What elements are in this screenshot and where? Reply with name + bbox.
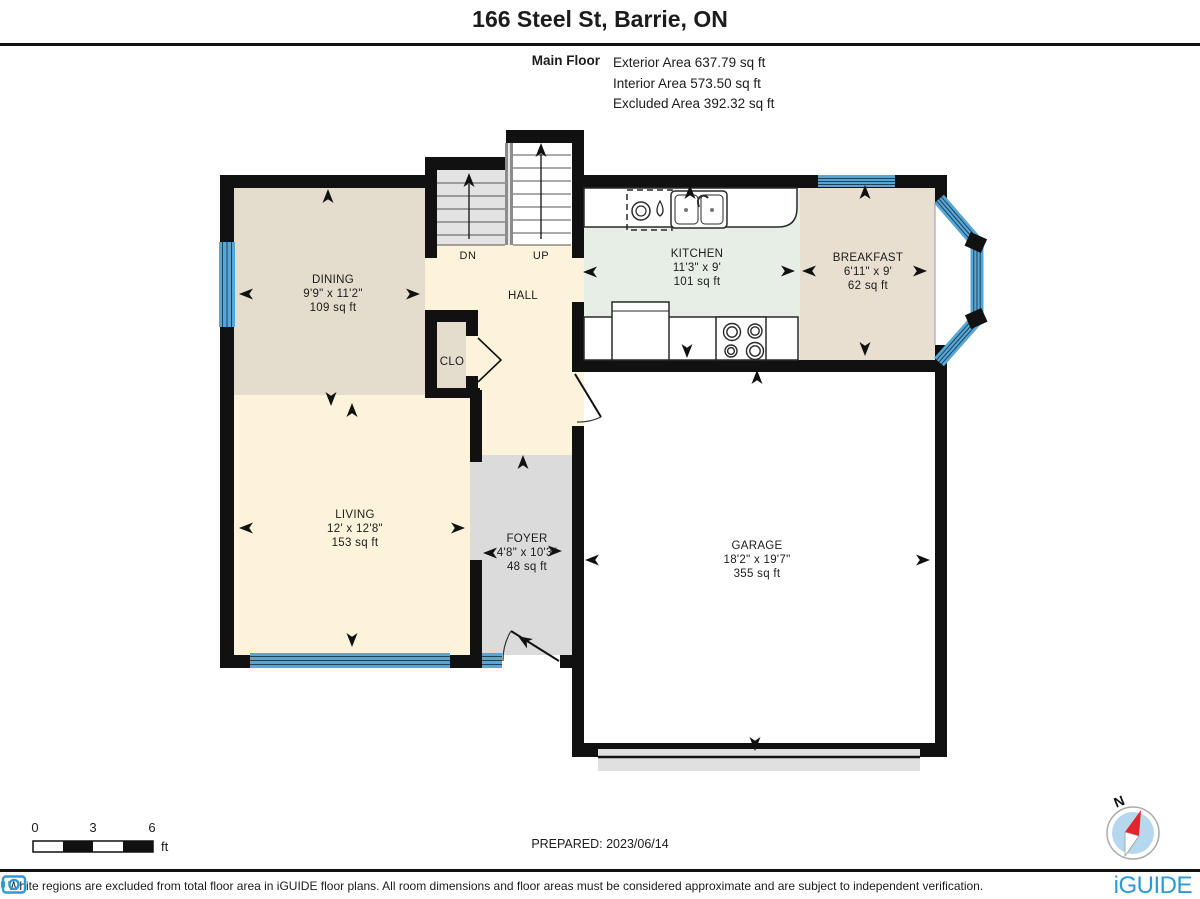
camera-icon <box>0 872 28 896</box>
stairs-down-label: DN <box>460 250 477 262</box>
scale-bar-segment <box>123 841 153 852</box>
floor-plan-page: N 166 Steel St, Barrie, ON Main Floor Ex… <box>0 0 1200 899</box>
room-label-breakfast: BREAKFAST 6'11" x 9' 62 sq ft <box>833 251 903 293</box>
room-label-living: LIVING 12' x 12'8" 153 sq ft <box>327 508 383 550</box>
room-dims: 11'3" x 9' <box>671 261 724 275</box>
room-area: 153 sq ft <box>327 536 383 550</box>
room-area: 48 sq ft <box>497 560 557 574</box>
scale-bar <box>33 841 153 852</box>
doorway-dining-hall <box>425 258 437 310</box>
page-title: 166 Steel St, Barrie, ON <box>0 6 1200 33</box>
room-name: KITCHEN <box>671 247 724 261</box>
wall-segment <box>220 175 437 188</box>
doorway-hall-kitchen <box>572 258 584 302</box>
scale-unit: ft <box>161 839 168 854</box>
room-area: 355 sq ft <box>724 567 791 581</box>
wall-segment <box>466 310 478 336</box>
scale-tick-6: 6 <box>148 820 155 835</box>
wall-segment <box>470 390 482 462</box>
wall-segment <box>572 130 584 258</box>
floor-plan-canvas: N <box>0 0 1200 899</box>
exterior-area: Exterior Area 637.79 sq ft <box>613 53 774 74</box>
interior-area: Interior Area 573.50 sq ft <box>613 74 774 95</box>
overhead-garage-door <box>598 749 920 771</box>
room-name: GARAGE <box>724 539 791 553</box>
stairs-divider-line <box>508 143 510 245</box>
room-name: FOYER <box>497 532 557 546</box>
bay-window <box>935 197 987 364</box>
floor-label: Main Floor <box>440 53 600 68</box>
sink-drain <box>710 208 714 212</box>
prepared-date: PREPARED: 2023/06/14 <box>531 837 668 851</box>
room-name: LIVING <box>327 508 383 522</box>
room-name: HALL <box>508 289 538 303</box>
room-area: 101 sq ft <box>671 275 724 289</box>
wall-segment <box>425 157 512 170</box>
room-dims: 6'11" x 9' <box>833 265 903 279</box>
room-area: 109 sq ft <box>303 301 362 315</box>
excluded-area: Excluded Area 392.32 sq ft <box>613 94 774 115</box>
wall-segment <box>572 426 584 757</box>
room-label-hall: HALL <box>508 289 538 303</box>
scale-tick-0: 0 <box>31 820 38 835</box>
stove <box>716 317 766 360</box>
stairs-up-label: UP <box>533 250 549 262</box>
room-name: CLO <box>440 355 465 369</box>
scale-bar-segment <box>63 841 93 852</box>
room-dims: 4'8" x 10'3" <box>497 546 557 560</box>
wall-segment <box>470 560 482 655</box>
room-label-garage: GARAGE 18'2" x 19'7" 355 sq ft <box>724 539 791 581</box>
scale-tick-3: 3 <box>89 820 96 835</box>
room-dims: 18'2" x 19'7" <box>724 553 791 567</box>
room-dims: 9'9" x 11'2" <box>303 287 362 301</box>
header-divider <box>0 43 1200 46</box>
room-label-dining: DINING 9'9" x 11'2" 109 sq ft <box>303 273 362 315</box>
room-area: 62 sq ft <box>833 279 903 293</box>
sink-drain <box>684 208 688 212</box>
disclaimer-text: White regions are excluded from total fl… <box>8 879 983 893</box>
iguide-logo: iGUIDE <box>1114 874 1192 898</box>
wall-segment <box>425 157 437 258</box>
brand-name: iGUIDE <box>1114 874 1192 898</box>
footer-bar: White regions are excluded from total fl… <box>0 869 1200 899</box>
compass: N <box>1107 792 1159 859</box>
floor-hall-lower <box>482 398 572 455</box>
room-label-kitchen: KITCHEN 11'3" x 9' 101 sq ft <box>671 247 724 289</box>
room-dims: 12' x 12'8" <box>327 522 383 536</box>
room-name: BREAKFAST <box>833 251 903 265</box>
wall-segment <box>425 310 437 398</box>
opening-living-foyer <box>470 462 482 560</box>
area-stats: Exterior Area 637.79 sq ft Interior Area… <box>613 53 774 115</box>
wall-segment <box>572 360 947 372</box>
room-name: DINING <box>303 273 362 287</box>
wall-segment <box>935 360 947 755</box>
room-label-foyer: FOYER 4'8" x 10'3" 48 sq ft <box>497 532 557 574</box>
room-label-closet: CLO <box>440 355 465 369</box>
